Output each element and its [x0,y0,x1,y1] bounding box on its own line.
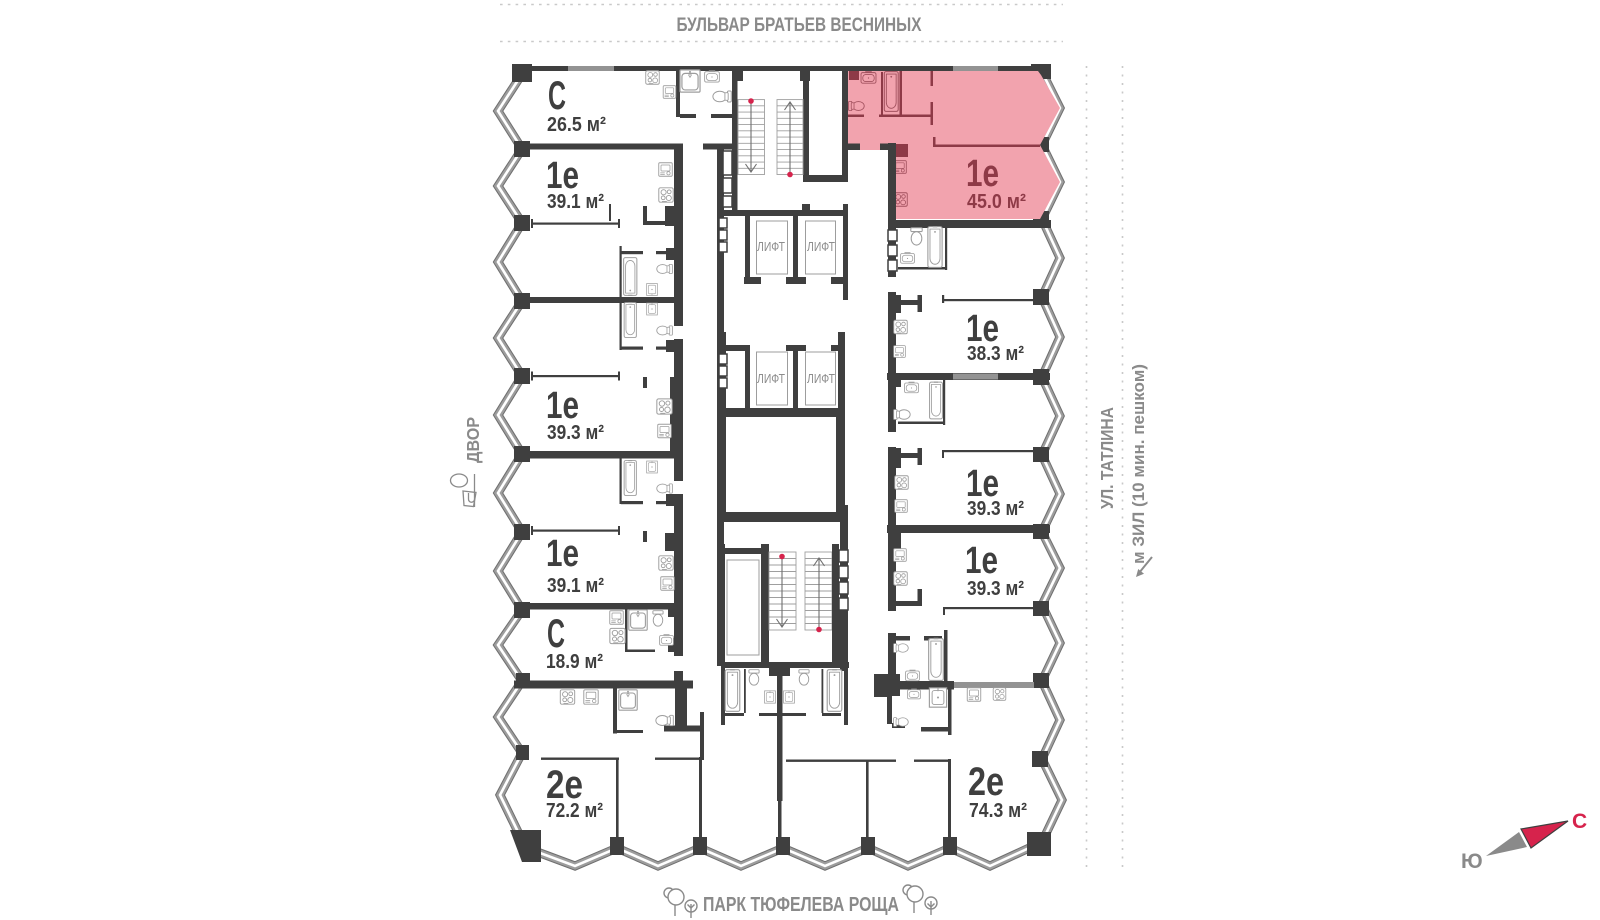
svg-text:1е: 1е [546,533,579,575]
svg-text:ЛИФТ: ЛИФТ [757,372,785,386]
svg-text:ПАРК ТЮФЕЛЕВА РОЩА: ПАРК ТЮФЕЛЕВА РОЩА [703,894,899,916]
svg-text:39.1 м²: 39.1 м² [547,575,604,597]
svg-text:26.5 м²: 26.5 м² [547,114,606,136]
svg-text:18.9 м²: 18.9 м² [546,651,603,673]
svg-text:УЛ. ТАТЛИНА: УЛ. ТАТЛИНА [1097,407,1117,509]
svg-text:39.3 м²: 39.3 м² [547,422,604,444]
svg-text:м ЗИЛ (10 мин. пешком): м ЗИЛ (10 мин. пешком) [1129,364,1148,564]
svg-text:39.3 м²: 39.3 м² [967,498,1024,520]
svg-text:БУЛЬВАР БРАТЬЕВ ВЕСНИНЫХ: БУЛЬВАР БРАТЬЕВ ВЕСНИНЫХ [677,15,922,36]
svg-text:С: С [547,612,565,656]
svg-text:74.3 м²: 74.3 м² [969,800,1027,822]
svg-text:1е: 1е [965,540,998,582]
svg-text:Ю: Ю [1461,850,1483,873]
svg-text:1е: 1е [546,385,579,427]
svg-text:2е: 2е [968,760,1004,804]
svg-text:39.1 м²: 39.1 м² [547,191,604,213]
svg-text:ЛИФТ: ЛИФТ [757,240,785,254]
svg-text:ДВОР: ДВОР [463,417,483,463]
svg-text:С: С [1572,810,1587,833]
svg-text:38.3 м²: 38.3 м² [967,343,1024,365]
svg-text:45.0 м²: 45.0 м² [967,191,1026,213]
svg-text:С: С [548,74,566,118]
svg-text:ЛИФТ: ЛИФТ [807,240,835,254]
svg-text:39.3 м²: 39.3 м² [967,578,1024,600]
svg-text:1е: 1е [966,153,999,195]
svg-text:72.2 м²: 72.2 м² [546,800,603,822]
svg-text:ЛИФТ: ЛИФТ [807,372,835,386]
